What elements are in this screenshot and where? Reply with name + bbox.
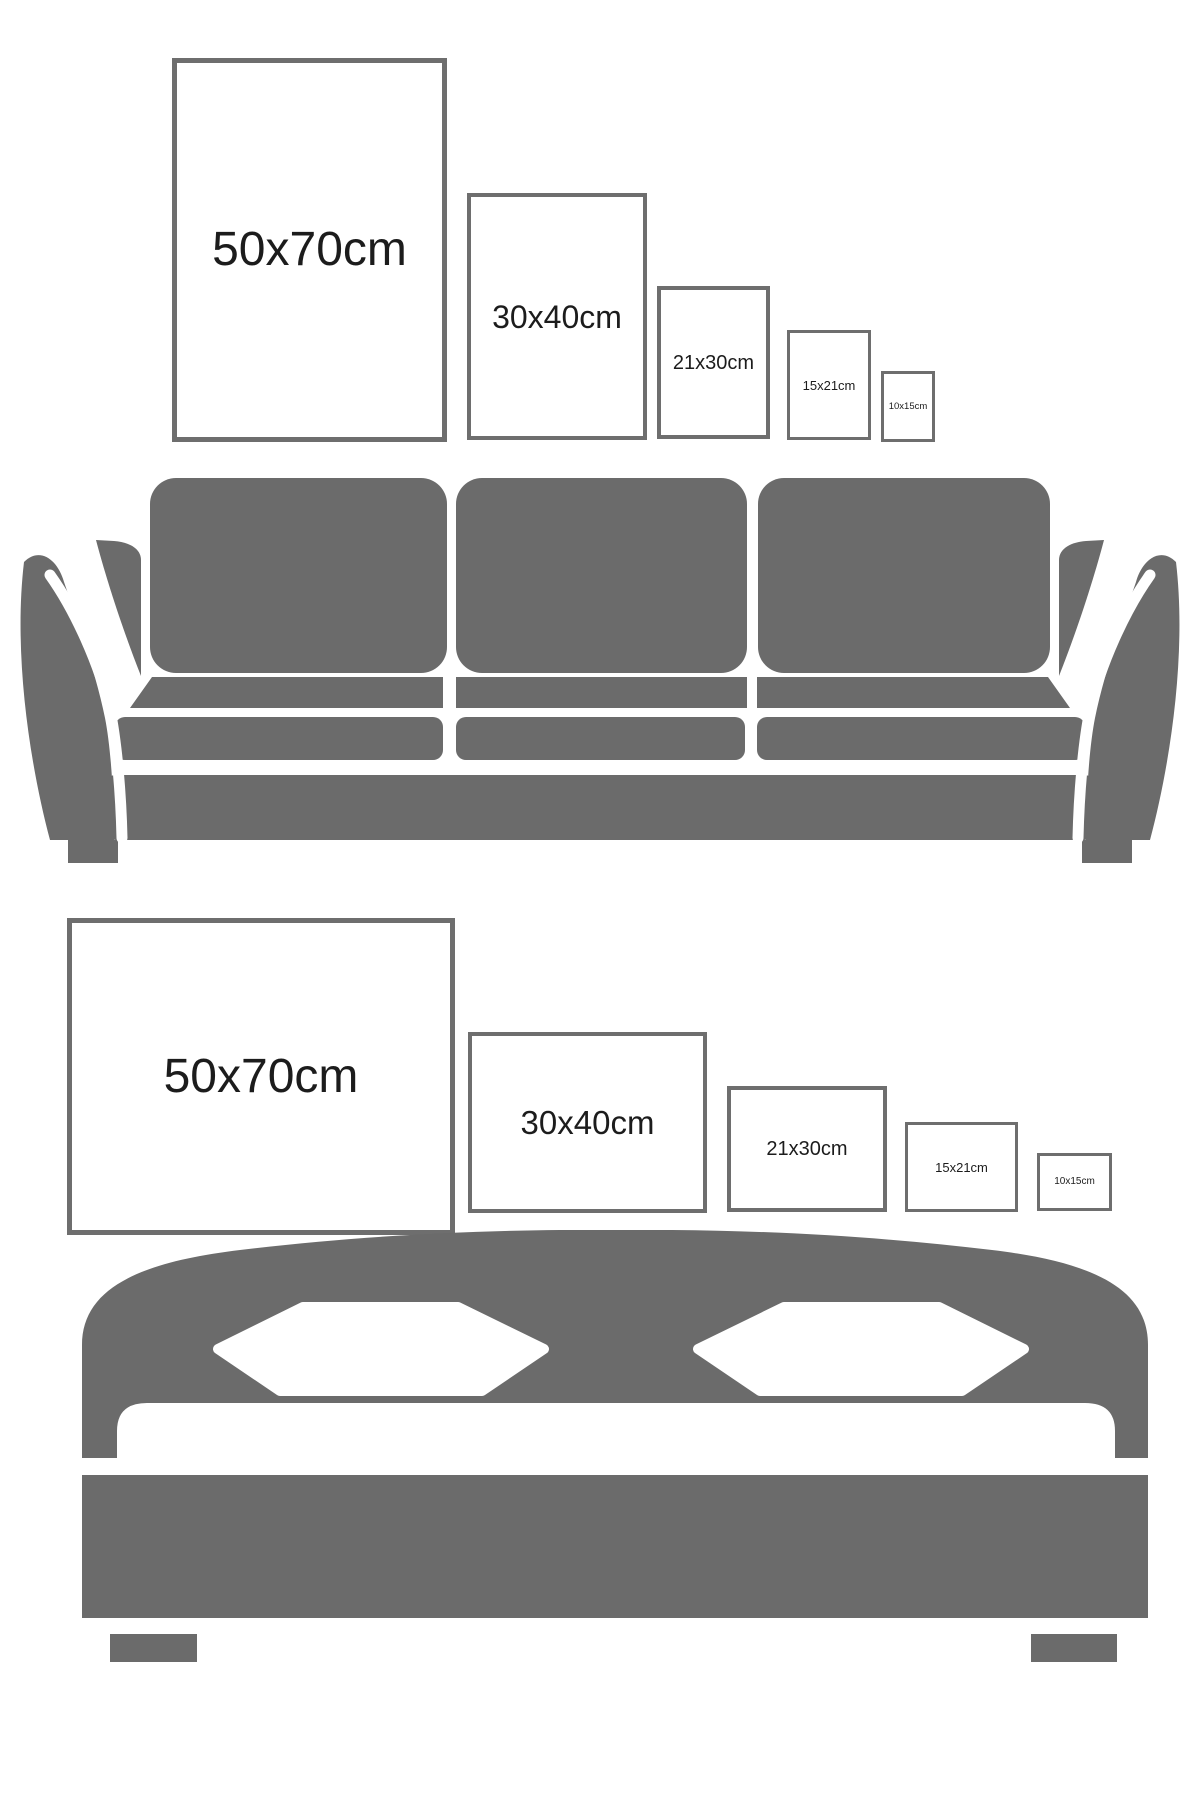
size-label-10x15: 10x15cm xyxy=(889,402,928,412)
size-label-15x21: 15x21cm xyxy=(935,1161,988,1174)
size-frame-portrait-15x21: 15x21cm xyxy=(787,330,871,440)
size-label-21x30: 21x30cm xyxy=(766,1139,847,1159)
size-label-30x40: 30x40cm xyxy=(521,1106,655,1139)
size-label-10x15: 10x15cm xyxy=(1054,1177,1095,1187)
size-frame-landscape-50x70: 50x70cm xyxy=(67,918,455,1235)
sofa-icon xyxy=(0,440,1200,870)
size-label-15x21: 15x21cm xyxy=(803,379,856,392)
size-frame-portrait-21x30: 21x30cm xyxy=(657,286,770,439)
size-label-50x70: 50x70cm xyxy=(212,226,407,274)
size-label-21x30: 21x30cm xyxy=(673,353,754,373)
size-frame-landscape-15x21: 15x21cm xyxy=(905,1122,1018,1212)
size-frame-landscape-21x30: 21x30cm xyxy=(727,1086,887,1212)
size-frame-portrait-30x40: 30x40cm xyxy=(467,193,647,440)
size-frame-landscape-10x15: 10x15cm xyxy=(1037,1153,1112,1211)
size-label-30x40: 30x40cm xyxy=(492,301,622,333)
size-frame-portrait-10x15: 10x15cm xyxy=(881,371,935,442)
size-frame-landscape-30x40: 30x40cm xyxy=(468,1032,707,1213)
bed-icon xyxy=(0,1230,1200,1670)
poster-size-guide: 50x70cm 30x40cm 21x30cm 15x21cm 10x15cm xyxy=(0,0,1200,1800)
size-frame-portrait-50x70: 50x70cm xyxy=(172,58,447,442)
size-label-50x70: 50x70cm xyxy=(164,1053,359,1101)
